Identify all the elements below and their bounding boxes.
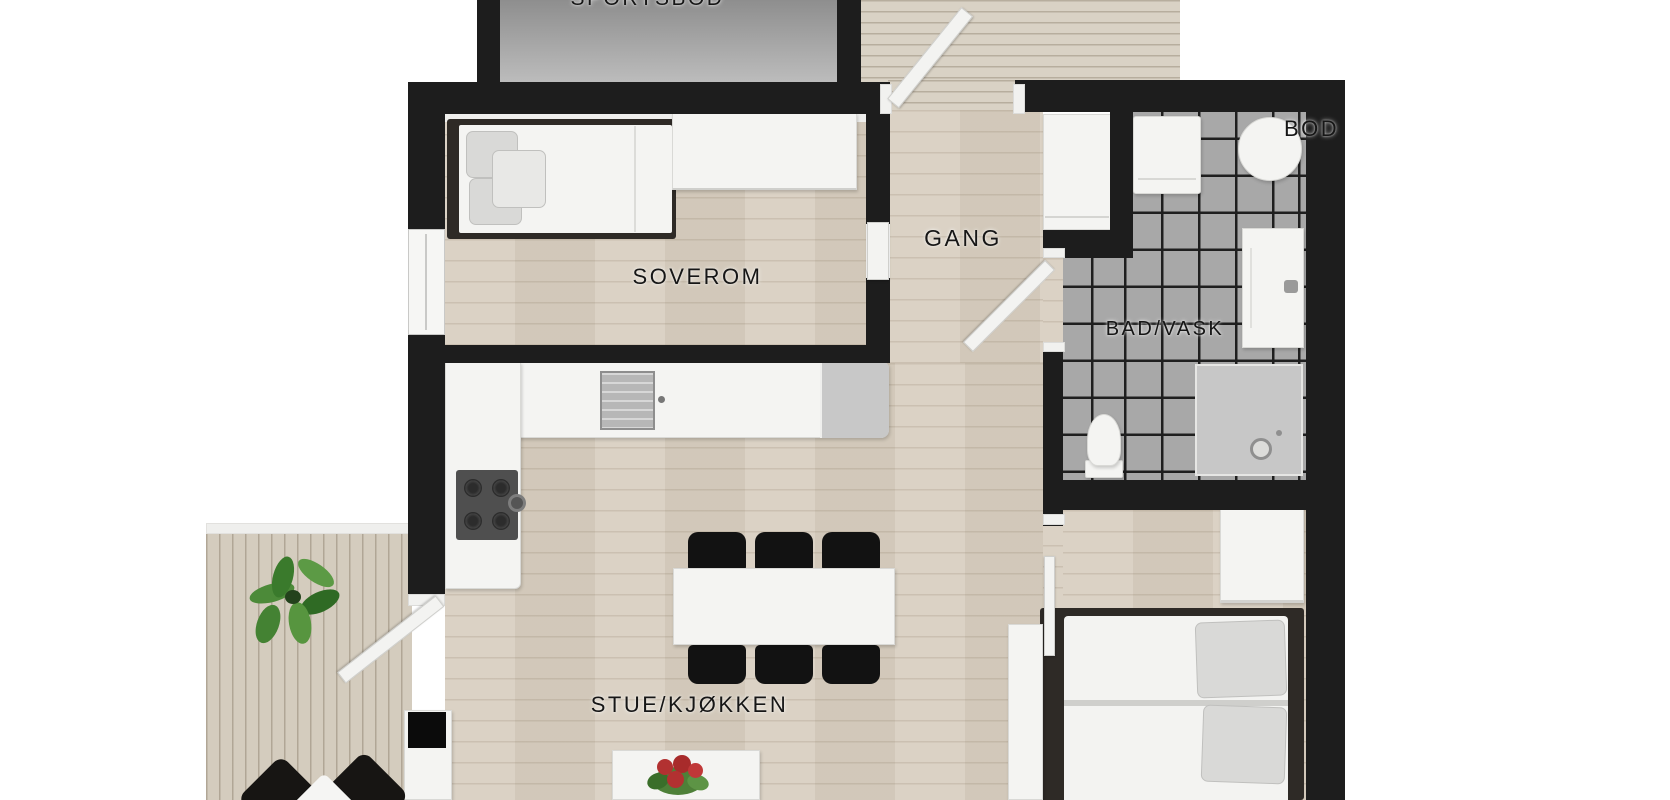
wall-left-mid [408,335,445,605]
soverom-door [867,222,889,280]
vanity-basin-line [1250,248,1252,328]
soverom-window [408,229,445,335]
bathroom-door-jamb [1043,342,1065,352]
wall-top-right [1015,80,1345,112]
shower-head-icon [1250,438,1272,460]
cooktop-burner [464,512,482,530]
wall-bath-bottom [1043,480,1307,510]
wall-top-left [408,82,890,114]
dining-chair [755,645,813,684]
dining-chair [822,532,880,572]
bed-double-duvet-gap [1064,700,1288,706]
dining-table [673,568,895,645]
pillow [492,150,546,208]
room-label-bad-vask: BAD/VASK [1085,318,1245,341]
toilet-bowl [1087,414,1121,466]
pillow [1201,705,1288,785]
wall-sportsbod-right [837,0,861,84]
cooktop-burner [464,479,482,497]
room-label-stue-kjokken: STUE/KJØKKEN [577,692,802,718]
bedroom2-door-jamb [1043,514,1065,525]
vanity-faucet [1284,280,1298,293]
tv [408,712,446,748]
cooktop-burner [492,512,510,530]
room-label-bod: BOD [1284,116,1364,142]
cooktop-burner [492,479,510,497]
room-label-sportsbod: SPORTSBOD [555,0,740,11]
dining-chair [688,645,746,684]
entrance-door-jamb [1013,84,1025,114]
table-plant [645,753,711,800]
balcony-rim [206,523,412,534]
dining-chair [755,532,813,572]
shower-valve-dot [1276,430,1282,436]
pillow [1195,619,1288,698]
wall-soverom-gang-lower [866,278,890,363]
room-label-gang: GANG [908,225,1018,252]
wall-left-upper [408,82,445,229]
washing-machine [1133,116,1201,194]
shower [1195,364,1303,476]
wall-bod-left [1110,108,1133,238]
kitchen-sink [600,371,655,430]
wall-soverom-bottom [408,345,890,363]
bed-single-duvet-crease [634,126,636,232]
wardrobe [672,113,857,190]
fridge [820,362,889,438]
balcony-plant [247,556,343,648]
room-label-soverom: SOVEROM [610,264,785,290]
bathroom-door-jamb [1043,248,1065,258]
sink-faucet-dot [658,396,665,403]
bedroom2-cabinet [1220,508,1304,603]
washing-machine-door-line [1138,178,1196,180]
dining-chair [688,532,746,572]
sideboard [1008,624,1043,800]
hall-closet-shelf-line [1045,216,1109,218]
wall-sportsbod-left [477,0,500,84]
floor-plan: SPORTSBOD SOVEROM GANG BOD BAD/VASK STUE… [0,0,1670,800]
sportsbod-floor [497,0,837,84]
dining-chair [822,645,880,684]
cooktop-knob [508,494,526,512]
wall-right [1306,80,1345,800]
bedroom2-door [1044,556,1055,656]
hall-closet [1043,114,1111,230]
